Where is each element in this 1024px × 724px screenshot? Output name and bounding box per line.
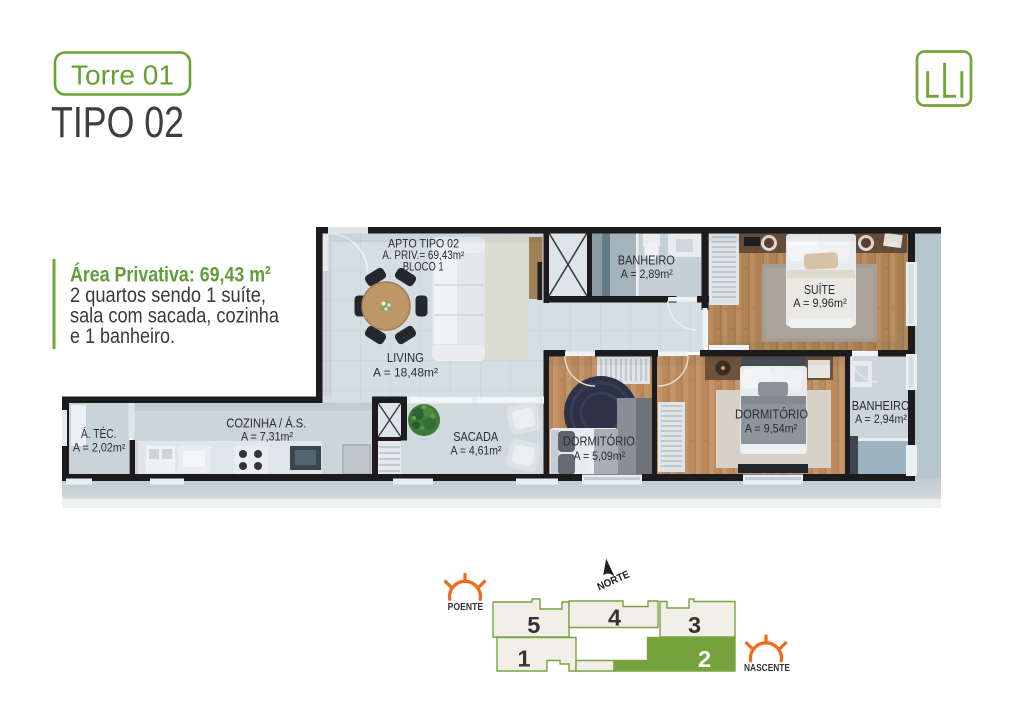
svg-text:3: 3 bbox=[688, 612, 701, 638]
svg-text:A = 7,31m²: A = 7,31m² bbox=[241, 430, 293, 444]
svg-text:1: 1 bbox=[517, 646, 530, 672]
svg-text:A = 2,94m²: A = 2,94m² bbox=[855, 412, 907, 426]
svg-text:A = 2,89m²: A = 2,89m² bbox=[621, 267, 673, 281]
svg-text:BANHEIRO: BANHEIRO bbox=[852, 399, 910, 413]
svg-text:COZINHA / Á.S.: COZINHA / Á.S. bbox=[226, 416, 306, 431]
svg-text:Torre 01: Torre 01 bbox=[71, 60, 174, 91]
svg-text:2: 2 bbox=[698, 646, 711, 672]
svg-text:A. PRIV.= 69,43m²: A. PRIV.= 69,43m² bbox=[382, 250, 464, 262]
svg-text:Área Privativa: 69,43 m²: Área Privativa: 69,43 m² bbox=[70, 262, 271, 287]
svg-text:NASCENTE: NASCENTE bbox=[744, 662, 790, 674]
svg-text:SUÍTE: SUÍTE bbox=[804, 282, 835, 297]
svg-text:APTO TIPO 02: APTO TIPO 02 bbox=[388, 237, 459, 251]
svg-text:A = 4,61m²: A = 4,61m² bbox=[451, 443, 502, 457]
svg-text:A = 2,02m²: A = 2,02m² bbox=[73, 442, 126, 454]
svg-text:BANHEIRO: BANHEIRO bbox=[618, 254, 675, 268]
svg-text:Á. TÉC.: Á. TÉC. bbox=[81, 426, 116, 441]
svg-text:e 1 banheiro.: e 1 banheiro. bbox=[70, 325, 175, 348]
svg-text:DORMITÓRIO: DORMITÓRIO bbox=[563, 434, 635, 449]
svg-text:BLOCO 1: BLOCO 1 bbox=[403, 261, 444, 273]
svg-text:POENTE: POENTE bbox=[448, 601, 484, 613]
svg-text:TIPO 02: TIPO 02 bbox=[51, 99, 184, 147]
svg-text:5: 5 bbox=[527, 612, 540, 638]
svg-text:A = 5,09m²: A = 5,09m² bbox=[574, 449, 626, 463]
svg-text:DORMITÓRIO: DORMITÓRIO bbox=[735, 406, 808, 421]
svg-text:SACADA: SACADA bbox=[453, 429, 498, 444]
svg-text:LIVING: LIVING bbox=[387, 350, 424, 365]
svg-text:A = 9,96m²: A = 9,96m² bbox=[793, 296, 847, 310]
svg-text:A = 9,54m²: A = 9,54m² bbox=[745, 421, 798, 435]
svg-text:4: 4 bbox=[608, 605, 621, 631]
svg-text:A = 18,48m²: A = 18,48m² bbox=[373, 365, 438, 379]
